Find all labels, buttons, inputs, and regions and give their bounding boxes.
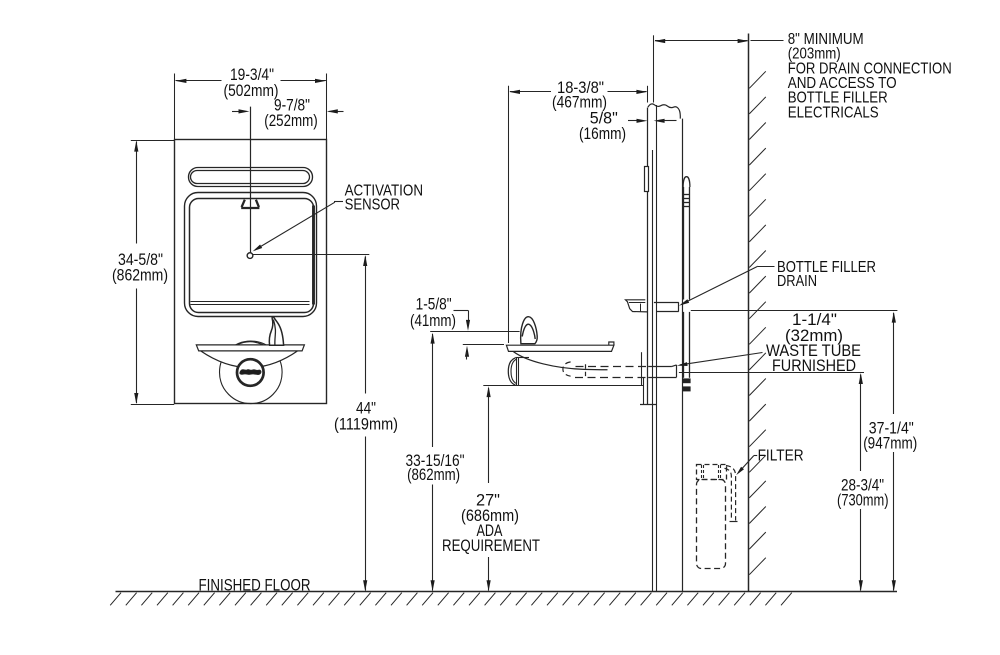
svg-text:(730mm): (730mm) — [837, 491, 889, 510]
svg-text:(862mm): (862mm) — [112, 266, 168, 285]
svg-text:SENSOR: SENSOR — [345, 196, 400, 213]
svg-text:(862mm): (862mm) — [407, 465, 460, 484]
svg-text:REQUIREMENT: REQUIREMENT — [442, 536, 540, 555]
svg-text:ELECTRICALS: ELECTRICALS — [788, 104, 879, 121]
svg-text:(16mm): (16mm) — [579, 124, 626, 143]
svg-text:(1119mm): (1119mm) — [334, 415, 398, 434]
svg-text:FINISHED FLOOR: FINISHED FLOOR — [199, 575, 311, 594]
svg-text:(252mm): (252mm) — [264, 111, 318, 130]
svg-text:DRAIN: DRAIN — [777, 273, 817, 290]
svg-text:(947mm): (947mm) — [863, 434, 917, 453]
svg-text:FURNISHED: FURNISHED — [772, 356, 856, 375]
svg-text:(502mm): (502mm) — [224, 81, 279, 100]
svg-text:FILTER: FILTER — [758, 448, 804, 465]
svg-text:(41mm): (41mm) — [410, 311, 456, 330]
